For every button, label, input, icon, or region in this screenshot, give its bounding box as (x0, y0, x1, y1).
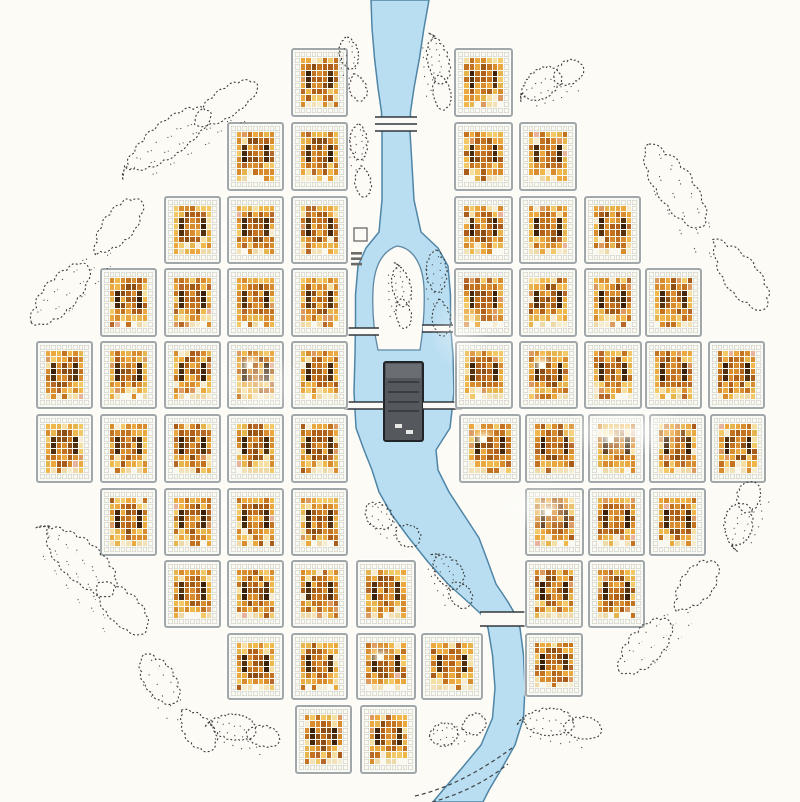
block-cell (316, 709, 321, 714)
block-cell (259, 278, 264, 283)
block-cell (253, 492, 258, 497)
block-cell (523, 388, 528, 393)
block-cell (425, 673, 430, 678)
block-cell (487, 437, 492, 442)
block-cell (366, 673, 371, 678)
block-cell (79, 363, 84, 368)
block-cell (403, 721, 408, 726)
block-cell (121, 322, 126, 327)
block-cell (575, 504, 580, 509)
block-cell (275, 182, 280, 187)
block-cell (84, 468, 89, 473)
block-cell (201, 297, 206, 302)
block-cell (332, 728, 337, 733)
block-cell (481, 52, 486, 57)
block-cell (317, 309, 322, 314)
city-block (100, 488, 157, 556)
block-cell (474, 655, 479, 660)
block-cell (212, 255, 217, 260)
city-block (227, 633, 284, 700)
block-cell (470, 328, 475, 333)
block-cell (207, 218, 212, 223)
block-cell (242, 643, 247, 648)
block-cell (137, 382, 142, 387)
block-cell (190, 345, 195, 350)
block-cell (529, 218, 534, 223)
block-cell (449, 691, 454, 696)
block-cell (132, 541, 137, 546)
block-cell (73, 461, 78, 466)
block-cell (487, 255, 492, 260)
block-cell (449, 667, 454, 672)
block-cell (328, 212, 333, 217)
block-cell (504, 249, 509, 254)
block-cell (725, 474, 729, 479)
block-cell (723, 351, 728, 356)
block-cell (487, 357, 492, 362)
block-cell (323, 504, 328, 509)
block-cell (557, 212, 562, 217)
block-cell (295, 157, 300, 162)
block-cell (334, 673, 339, 678)
block-cell (670, 437, 675, 442)
block-cell (242, 351, 247, 356)
block-cell (339, 138, 344, 143)
block-cell (487, 206, 492, 211)
block-cell (470, 237, 475, 242)
block-cell (529, 492, 534, 497)
block-cell (179, 437, 184, 442)
block-cell (675, 468, 680, 473)
block-cell (557, 200, 562, 205)
block-cell (470, 182, 475, 187)
block-cell (499, 375, 504, 380)
block-cell (366, 613, 371, 618)
block-cell (614, 443, 619, 448)
block-cell (323, 328, 328, 333)
block-cell (305, 715, 310, 720)
block-cell (546, 328, 551, 333)
block-cell (190, 492, 195, 497)
block-cell (328, 351, 333, 356)
block-cell (264, 492, 269, 497)
block-cell (253, 237, 258, 242)
block-cell (253, 163, 258, 168)
block-cell (190, 468, 195, 473)
block-cell (253, 449, 258, 454)
block-cell (253, 601, 258, 606)
block-cell (459, 357, 464, 362)
block-cell (487, 315, 492, 320)
block-cell (242, 564, 247, 569)
block-cell (190, 594, 195, 599)
block-cell (317, 430, 322, 435)
block-cell (190, 619, 195, 624)
block-cell (756, 382, 761, 387)
block-cell (306, 474, 311, 479)
block-cell (729, 369, 734, 374)
block-cell (592, 449, 597, 454)
block-cell (666, 303, 671, 308)
block-cell (343, 734, 348, 739)
block-cell (389, 601, 394, 606)
block-cell (207, 498, 212, 503)
block-cell (328, 375, 333, 380)
block-cell (317, 691, 322, 696)
block-cell (253, 430, 258, 435)
block-cell (51, 418, 56, 423)
block-cell (295, 443, 300, 448)
block-cell (725, 455, 729, 460)
block-cell (270, 163, 275, 168)
block-cell (115, 468, 120, 473)
block-cell (653, 449, 658, 454)
block-cell (464, 249, 469, 254)
block-cell (312, 637, 317, 642)
block-cell (603, 474, 608, 479)
block-cell (259, 169, 264, 174)
block-cell (174, 594, 179, 599)
block-cell (389, 667, 394, 672)
block-cell (264, 685, 269, 690)
block-cell (323, 163, 328, 168)
block-cell (317, 516, 322, 521)
block-cell (730, 424, 734, 429)
block-cell (568, 309, 573, 314)
block-cell (594, 357, 599, 362)
block-cell (339, 284, 344, 289)
block-cell (317, 71, 322, 76)
block-cell (79, 443, 84, 448)
block-cell (681, 455, 686, 460)
block-cell (51, 430, 56, 435)
block-cell (317, 455, 322, 460)
block-cell (259, 369, 264, 374)
block-cell (275, 643, 280, 648)
block-cell (306, 643, 311, 648)
block-cell (751, 345, 756, 350)
block-cell (334, 504, 339, 509)
block-cell (168, 303, 173, 308)
block-cell (179, 230, 184, 235)
block-cell (481, 163, 486, 168)
block-cell (321, 715, 326, 720)
block-cell (185, 492, 190, 497)
block-cell (752, 449, 756, 454)
block-cell (306, 284, 311, 289)
block-cell (306, 83, 311, 88)
block-cell (588, 357, 593, 362)
block-cell (62, 382, 67, 387)
block-cell (323, 145, 328, 150)
block-cell (270, 375, 275, 380)
block-cell (557, 182, 562, 187)
block-cell (73, 351, 78, 356)
block-cell (73, 394, 78, 399)
block-cell (682, 369, 687, 374)
block-cell (588, 200, 593, 205)
block-cell (264, 291, 269, 296)
block-cell (132, 449, 137, 454)
block-cell (317, 661, 322, 666)
block-cell (301, 212, 306, 217)
block-cell (675, 461, 680, 466)
block-cell (339, 351, 344, 356)
city-block (710, 414, 766, 483)
block-cell (682, 309, 687, 314)
block-cell (84, 430, 89, 435)
block-cell (264, 673, 269, 678)
block-cell (458, 83, 463, 88)
block-cell (334, 58, 339, 63)
block-cell (741, 418, 745, 423)
block-cell (339, 455, 344, 460)
block-cell (295, 249, 300, 254)
block-cell (185, 278, 190, 283)
block-cell (686, 449, 691, 454)
block-cell (174, 498, 179, 503)
block-cell (401, 685, 406, 690)
block-cell (557, 151, 562, 156)
block-cell (248, 297, 253, 302)
block-cell (730, 418, 734, 423)
block-cell (295, 224, 300, 229)
block-cell (253, 218, 258, 223)
block-cell (328, 243, 333, 248)
block-cell (401, 655, 406, 660)
block-cell (207, 504, 212, 509)
block-cell (558, 504, 563, 509)
block-cell (563, 169, 568, 174)
block-cell (242, 224, 247, 229)
block-cell (275, 498, 280, 503)
block-cell (79, 424, 84, 429)
block-cell (248, 643, 253, 648)
block-cell (168, 363, 173, 368)
block-cell (370, 752, 375, 757)
block-cell (456, 673, 461, 678)
block-cell (334, 83, 339, 88)
block-cell (253, 516, 258, 521)
block-cell (506, 461, 511, 466)
block-cell (506, 449, 511, 454)
block-cell (725, 430, 729, 435)
block-cell (295, 284, 300, 289)
block-cell (168, 322, 173, 327)
block-cell (231, 176, 236, 181)
block-cell (148, 388, 153, 393)
block-cell (758, 461, 762, 466)
block-cell (115, 322, 120, 327)
block-cell (332, 746, 337, 751)
block-cell (148, 430, 153, 435)
block-cell (137, 351, 142, 356)
block-cell (317, 145, 322, 150)
block-cell (364, 734, 369, 739)
block-cell (40, 443, 45, 448)
block-cell (299, 709, 304, 714)
block-cell (487, 388, 492, 393)
block-cell (104, 430, 109, 435)
block-cell (551, 224, 556, 229)
block-cell (408, 765, 413, 770)
block-cell (301, 157, 306, 162)
block-cell (469, 461, 474, 466)
block-cell (190, 443, 195, 448)
block-cell (378, 613, 383, 618)
block-cell (563, 400, 568, 405)
block-cell (431, 655, 436, 660)
block-cell (598, 474, 603, 479)
block-cell (328, 303, 333, 308)
block-cell (132, 382, 137, 387)
block-cell (741, 455, 745, 460)
block-cell (143, 529, 148, 534)
block-cell (339, 182, 344, 187)
block-cell (301, 547, 306, 552)
block-cell (275, 594, 280, 599)
block-cell (719, 449, 723, 454)
block-cell (458, 230, 463, 235)
block-cell (437, 655, 442, 660)
block-cell (253, 394, 258, 399)
block-cell (174, 369, 179, 374)
block-cell (259, 418, 264, 423)
block-cell (481, 309, 486, 314)
block-cell (185, 582, 190, 587)
block-cell (259, 322, 264, 327)
block-cell (487, 328, 492, 333)
block-cell (185, 449, 190, 454)
block-cell (611, 394, 616, 399)
block-cell (126, 424, 131, 429)
block-cell (231, 619, 236, 624)
block-cell (568, 322, 573, 327)
block-cell (104, 461, 109, 466)
block-cell (46, 394, 51, 399)
block-cell (104, 315, 109, 320)
block-cell (523, 200, 528, 205)
block-cell (563, 132, 568, 137)
block-cell (389, 564, 394, 569)
block-cell (328, 655, 333, 660)
block-cell (403, 740, 408, 745)
block-cell (482, 400, 487, 405)
block-cell (692, 455, 697, 460)
block-cell (104, 522, 109, 527)
block-cell (179, 400, 184, 405)
block-cell (712, 394, 717, 399)
block-cell (148, 498, 153, 503)
city-block (454, 48, 513, 117)
block-cell (736, 455, 740, 460)
block-cell (493, 182, 498, 187)
block-cell (408, 721, 413, 726)
block-cell (317, 601, 322, 606)
block-cell (168, 212, 173, 217)
block-cell (301, 83, 306, 88)
block-cell (143, 547, 148, 552)
block-cell (339, 52, 344, 57)
block-cell (295, 394, 300, 399)
block-cell (179, 322, 184, 327)
block-cell (339, 418, 344, 423)
block-cell (498, 89, 503, 94)
block-cell (212, 249, 217, 254)
block-cell (546, 200, 551, 205)
block-cell (270, 309, 275, 314)
block-cell (259, 522, 264, 527)
block-cell (196, 424, 201, 429)
block-cell (529, 284, 534, 289)
block-cell (475, 249, 480, 254)
block-cell (745, 382, 750, 387)
block-cell (616, 255, 621, 260)
block-cell (148, 522, 153, 527)
block-cell (408, 746, 413, 751)
block-cell (557, 157, 562, 162)
block-cell (610, 328, 615, 333)
block-cell (664, 474, 669, 479)
city-block (291, 633, 348, 700)
block-cell (498, 303, 503, 308)
block-cell (312, 169, 317, 174)
block-cell (317, 369, 322, 374)
block-cell (104, 345, 109, 350)
block-cell (712, 351, 717, 356)
block-cell (366, 576, 371, 581)
block-cell (568, 138, 573, 143)
block-cell (328, 388, 333, 393)
block-cell (594, 351, 599, 356)
block-cell (295, 637, 300, 642)
block-cell (179, 474, 184, 479)
block-cell (190, 388, 195, 393)
block-cell (306, 145, 311, 150)
block-cell (599, 278, 604, 283)
block-cell (46, 363, 51, 368)
block-cell (264, 138, 269, 143)
block-cell (270, 345, 275, 350)
block-cell (104, 363, 109, 368)
block-cell (338, 765, 343, 770)
block-cell (378, 643, 383, 648)
block-cell (295, 315, 300, 320)
block-cell (563, 357, 568, 362)
block-cell (231, 249, 236, 254)
block-cell (126, 357, 131, 362)
block-cell (529, 522, 534, 527)
block-cell (201, 570, 206, 575)
block-cell (323, 673, 328, 678)
block-cell (725, 461, 729, 466)
block-cell (692, 468, 697, 473)
block-cell (493, 351, 498, 356)
block-cell (259, 345, 264, 350)
block-cell (540, 212, 545, 217)
block-cell (179, 504, 184, 509)
block-cell (259, 176, 264, 181)
block-cell (614, 430, 619, 435)
block-cell (475, 52, 480, 57)
block-cell (370, 709, 375, 714)
block-cell (693, 284, 698, 289)
block-cell (470, 89, 475, 94)
block-cell (339, 643, 344, 648)
block-cell (339, 89, 344, 94)
block-cell (306, 655, 311, 660)
block-cell (614, 461, 619, 466)
